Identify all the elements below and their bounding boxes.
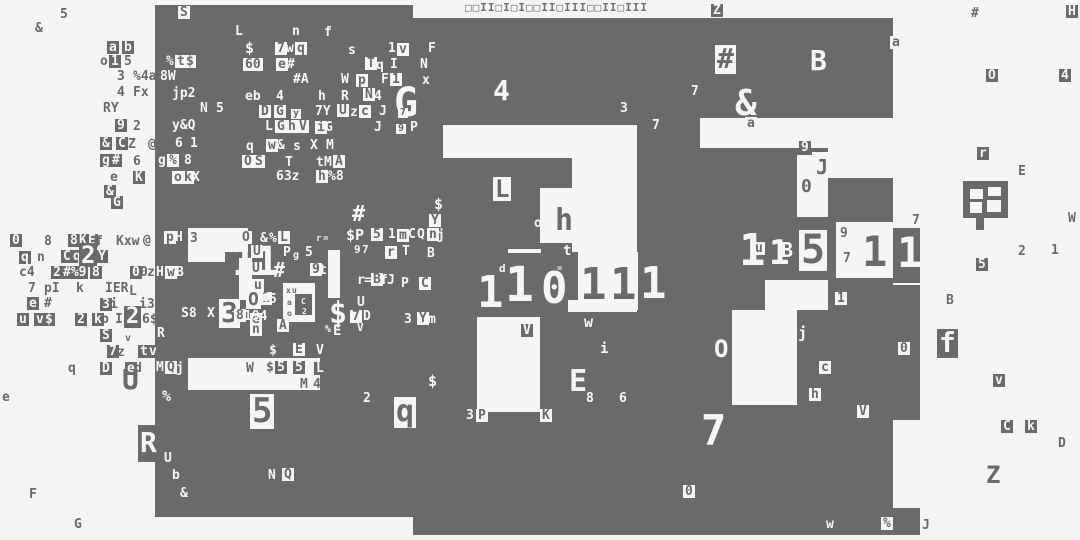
glyph: a <box>287 299 292 307</box>
glyph: 5 <box>799 230 827 271</box>
glyph: q <box>19 251 31 264</box>
glyph: 3 <box>466 409 474 422</box>
glyph: Z <box>128 138 136 151</box>
glyph: # <box>715 45 736 74</box>
glyph: q <box>68 362 76 375</box>
glyph: F <box>381 73 389 86</box>
glyph: u <box>292 287 297 295</box>
glyph: $ <box>434 197 443 212</box>
glyph: L <box>129 285 137 298</box>
glyph: M <box>326 139 334 152</box>
glyph: n <box>250 323 262 336</box>
glyph: g <box>293 251 299 261</box>
glyph: o <box>287 310 292 318</box>
glyph: b <box>101 313 109 326</box>
glyph: 5 <box>293 361 305 374</box>
glyph: 1 <box>388 42 396 55</box>
glyph: 9 <box>115 119 127 132</box>
glyph: N <box>200 102 208 115</box>
glyph: 1 <box>610 263 637 308</box>
glyph: 4 <box>313 378 321 391</box>
glyph: Q <box>282 468 294 481</box>
glyph: g <box>158 154 166 167</box>
glyph: J <box>379 105 387 118</box>
glyph: V <box>316 344 324 357</box>
glyph: H <box>156 266 164 279</box>
glyph: B <box>946 294 954 307</box>
glyph: G <box>111 196 123 209</box>
glyph: @ <box>143 234 151 247</box>
cutout-shape <box>328 250 340 298</box>
glyph: a <box>745 117 757 130</box>
glyph: 2 <box>124 306 141 328</box>
blob-shape <box>893 508 920 535</box>
glyph: D <box>363 310 371 323</box>
glyph: pI <box>44 282 60 295</box>
glyph: s <box>293 140 301 153</box>
glyph: w <box>826 518 834 531</box>
glyph: 1 <box>505 261 534 310</box>
glyph: 8W <box>160 70 176 83</box>
glyph: e <box>27 297 39 310</box>
glyph: B <box>781 240 793 260</box>
glyph: A <box>333 155 345 168</box>
glyph: C <box>408 228 416 241</box>
glyph: L <box>493 177 511 201</box>
glyph: 5 <box>976 258 988 271</box>
glyph: % <box>166 55 174 68</box>
glyph: M <box>300 378 308 391</box>
glyph: j <box>437 229 445 242</box>
glyph: h <box>555 206 573 237</box>
glyph: & <box>180 487 188 500</box>
glyph: v <box>147 345 159 358</box>
glyph: X <box>192 171 200 184</box>
glyph: # <box>352 204 365 226</box>
glyph: 6$ <box>142 313 158 326</box>
glyph: S <box>100 329 112 342</box>
glyph: 5 <box>60 8 68 21</box>
glyph: 4 <box>1059 69 1071 82</box>
glyph: 3 <box>404 313 412 326</box>
glyph: Q <box>417 228 425 241</box>
glitch-canvas: □□II□I□I□□II□III□□II□III 5&abo153%4ak8W4… <box>0 0 1080 540</box>
glyph: #A <box>293 73 309 86</box>
barcode: □□II□I□I□□II□III□□II□III <box>465 1 648 14</box>
glyph: i3 <box>139 298 155 311</box>
glyph: # <box>44 297 52 310</box>
glyph: L <box>235 25 243 38</box>
glyph: H <box>1066 5 1078 18</box>
glyph: B <box>810 47 827 76</box>
glyph: k <box>76 282 84 295</box>
glyph: 4 <box>117 86 125 99</box>
glyph: 1 <box>190 137 198 150</box>
glyph: J <box>922 519 930 532</box>
glyph: % <box>325 325 331 335</box>
glyph: 5 <box>124 55 132 68</box>
glyph: z <box>350 106 358 119</box>
glyph: c4 <box>19 266 35 279</box>
glyph: # <box>110 154 122 167</box>
glyph: S8 <box>181 307 197 320</box>
glyph: RY <box>103 102 119 115</box>
glyph: IER <box>105 282 128 295</box>
glyph: 8 <box>44 235 52 248</box>
glyph: G <box>274 105 286 118</box>
glyph: V <box>857 405 869 418</box>
glyph: 1 <box>1051 244 1059 257</box>
glyph: 7 <box>28 282 36 295</box>
glyph: O <box>986 69 998 82</box>
glyph: n <box>37 251 45 264</box>
glyph: 2 <box>79 243 97 267</box>
glyph: 1 <box>640 262 667 307</box>
glyph: y <box>291 109 301 119</box>
glyph: 2 <box>363 392 371 405</box>
glyph: w <box>584 315 593 330</box>
glyph: q <box>295 42 307 55</box>
glyph: 1 <box>835 292 847 305</box>
glyph: 60 <box>243 58 263 71</box>
glyph: 7 <box>912 214 920 227</box>
glyph: W <box>246 362 254 375</box>
glyph: h <box>318 90 326 103</box>
glyph: $ <box>428 374 437 389</box>
glyph: & <box>35 22 43 35</box>
glyph: F <box>29 488 37 501</box>
glyph: 9 <box>799 141 811 154</box>
glyph: Y <box>429 214 441 227</box>
glyph: t <box>316 156 324 169</box>
glyph: = <box>323 235 328 244</box>
glyph: j <box>798 326 807 341</box>
glyph: z <box>147 266 155 279</box>
cutout-shape <box>987 200 1001 212</box>
glyph: C <box>116 137 128 150</box>
glyph: j <box>176 362 184 375</box>
glyph: E <box>293 343 305 356</box>
glyph: E <box>1018 165 1026 178</box>
glyph: B <box>176 266 184 279</box>
glyph: D <box>1058 437 1066 450</box>
glyph: L <box>278 231 290 244</box>
glyph: % <box>162 389 171 404</box>
glyph: z <box>117 346 125 359</box>
glyph: 4 <box>261 293 269 306</box>
glyph: k <box>1025 420 1037 433</box>
glyph: $ <box>269 344 277 357</box>
glyph: 4 <box>493 77 510 106</box>
glyph: 1 <box>388 228 396 241</box>
glyph: a <box>107 41 119 54</box>
glyph: V <box>357 322 364 333</box>
glyph: F <box>428 42 436 55</box>
glyph: eb <box>245 90 261 103</box>
glyph: 0 <box>801 178 812 196</box>
glyph: K <box>133 171 145 184</box>
glyph: # <box>273 260 285 280</box>
glyph: X <box>207 307 215 320</box>
glyph: C <box>301 298 306 306</box>
glyph: E <box>333 324 341 338</box>
glyph: A <box>277 319 289 332</box>
cutout-shape <box>988 187 1001 196</box>
glyph: P <box>401 277 409 290</box>
glyph: b <box>172 469 180 482</box>
cutout-shape <box>732 310 797 405</box>
glyph: H <box>175 231 183 244</box>
glyph: 7 <box>398 108 408 118</box>
glyph: % <box>167 154 179 167</box>
glyph: N <box>420 58 428 71</box>
glyph: X <box>310 139 318 152</box>
glyph: y&Q <box>172 119 195 132</box>
glyph: 7 <box>843 252 851 265</box>
glyph: S <box>253 155 265 168</box>
glyph: M <box>156 361 164 374</box>
glyph: 2 <box>302 308 307 316</box>
glyph: 8 <box>586 392 594 405</box>
glyph: $P <box>346 228 364 243</box>
glyph: Z <box>986 463 1000 487</box>
glyph: 3 <box>117 70 125 83</box>
glyph: 63z <box>276 170 299 183</box>
glyph: 5 <box>275 361 287 374</box>
glyph: 6 <box>175 137 183 150</box>
glyph: Y <box>96 250 108 263</box>
glyph: 0 <box>541 267 568 312</box>
cutout-shape <box>508 249 541 253</box>
glyph: D <box>100 362 112 375</box>
glyph: v <box>993 374 1005 387</box>
glyph: 1 <box>477 271 504 316</box>
glyph: I <box>115 313 123 326</box>
glyph: a <box>890 36 902 49</box>
glyph: o <box>100 55 108 68</box>
glyph: C <box>419 277 431 290</box>
glyph: r <box>316 235 321 244</box>
glyph: jp2 <box>172 87 195 100</box>
glyph: @ <box>148 138 156 151</box>
glyph: u <box>17 313 29 326</box>
glyph: 5 <box>305 246 313 259</box>
blob-shape <box>976 218 984 230</box>
glyph: h <box>316 170 328 183</box>
cutout-shape <box>765 280 828 310</box>
glyph: U <box>357 296 365 309</box>
glyph: B <box>427 247 435 260</box>
glyph: s <box>348 44 356 57</box>
glyph: T <box>285 156 293 169</box>
glyph: r <box>385 246 397 259</box>
glyph: 6 <box>133 155 141 168</box>
glyph: b <box>122 41 134 54</box>
glyph: L <box>314 362 326 375</box>
glyph: 8 <box>90 266 102 279</box>
glyph: & <box>277 139 285 152</box>
glyph: J <box>374 121 382 134</box>
glyph: U <box>251 245 263 258</box>
glyph: J <box>814 157 830 177</box>
glyph: 0 <box>683 485 695 498</box>
glyph: m <box>428 313 436 326</box>
glyph: e <box>110 171 118 184</box>
glyph: Fx <box>133 86 149 99</box>
glyph: 9 <box>354 244 361 255</box>
glyph: K <box>540 409 552 422</box>
glyph: i <box>110 298 118 311</box>
glyph: G <box>325 121 333 134</box>
glyph: t <box>563 244 571 258</box>
glyph: O <box>246 291 261 309</box>
glyph: $ <box>43 313 55 326</box>
glyph: V <box>521 324 533 337</box>
glyph: J <box>387 274 395 287</box>
glyph: U <box>250 262 262 275</box>
glyph: P <box>410 121 418 134</box>
glyph: P <box>476 409 488 422</box>
glyph: o <box>534 217 542 230</box>
glyph: 3 <box>190 232 198 245</box>
glyph: 1 <box>109 55 121 68</box>
glyph: x <box>286 287 291 295</box>
glyph: Z <box>711 4 723 17</box>
glyph: $ <box>184 55 196 68</box>
glyph: c <box>359 105 371 118</box>
glyph: 5 <box>269 293 277 306</box>
glyph: $ <box>245 41 254 56</box>
glyph: # <box>287 58 295 71</box>
glyph: M <box>324 156 332 169</box>
glyph: 7 <box>701 410 726 453</box>
glyph: 9 <box>396 124 406 134</box>
glyph: 8 <box>184 154 192 167</box>
glyph: 6 <box>619 392 627 405</box>
glyph: f <box>937 329 958 358</box>
glyph: S <box>178 6 190 19</box>
glyph: V <box>297 120 309 133</box>
glyph: U <box>337 104 349 117</box>
glyph: v <box>125 334 131 344</box>
glyph: x <box>422 74 430 87</box>
glyph: 7 <box>362 244 369 255</box>
glyph: 0 <box>10 234 22 247</box>
glyph: q <box>376 59 384 72</box>
glyph: f <box>324 26 332 39</box>
glyph: 7Y <box>315 105 331 118</box>
glyph: L <box>265 120 273 133</box>
glyph: I <box>390 58 398 71</box>
glyph: & <box>100 137 112 150</box>
glyph: 7 <box>691 85 699 98</box>
glyph: D <box>259 105 271 118</box>
glyph: U <box>164 452 172 465</box>
glyph: 5 <box>216 102 224 115</box>
glyph: q <box>246 140 254 153</box>
glyph: t <box>319 264 327 277</box>
glyph: h <box>809 388 821 401</box>
glyph: 7 <box>652 119 660 132</box>
glyph: 1 <box>580 263 607 308</box>
glyph: w <box>286 42 294 55</box>
glyph: 4 <box>374 90 382 103</box>
glyph: 2 <box>133 120 141 133</box>
glyph: R <box>341 90 349 103</box>
glyph: 0 <box>898 342 910 355</box>
glyph: 5 <box>250 394 274 429</box>
glyph: 9 <box>840 227 848 240</box>
glyph: E <box>569 367 587 398</box>
glyph: p <box>356 74 368 87</box>
glyph: q <box>394 397 416 428</box>
glyph: e <box>2 391 10 404</box>
glyph: U <box>122 366 139 395</box>
cutout-shape <box>970 202 982 213</box>
glyph: r <box>977 147 989 160</box>
glyph: # <box>971 7 979 20</box>
glyph: T <box>402 245 410 258</box>
glyph: 1 <box>897 232 922 275</box>
glyph: n <box>292 25 300 38</box>
glyph: 194 <box>244 310 267 323</box>
glyph: i <box>600 342 608 356</box>
glyph: % <box>881 517 893 530</box>
glyph: $ <box>266 361 274 374</box>
glyph: G <box>74 518 82 531</box>
glyph: 3 <box>620 102 628 115</box>
glyph: W <box>341 73 349 86</box>
glyph: R <box>157 327 165 340</box>
cutout-shape <box>828 140 893 178</box>
glyph: c <box>819 361 831 374</box>
glyph: Kxw <box>116 235 139 248</box>
glyph: R <box>140 429 157 458</box>
glyph: W <box>1068 212 1076 225</box>
glyph: 2 <box>75 313 87 326</box>
glyph: 4 <box>276 90 284 103</box>
glyph: 5 <box>371 228 383 241</box>
glyph: C <box>1001 420 1013 433</box>
glyph: N <box>268 469 276 482</box>
glyph: O <box>714 337 728 361</box>
glyph: %8 <box>328 170 344 183</box>
glyph: 2 <box>1018 245 1026 258</box>
glyph: #%9 <box>61 266 88 279</box>
cutout-shape <box>970 189 983 199</box>
glyph: v <box>397 43 409 56</box>
glyph: u <box>753 242 765 255</box>
glyph: 1 <box>862 231 887 274</box>
